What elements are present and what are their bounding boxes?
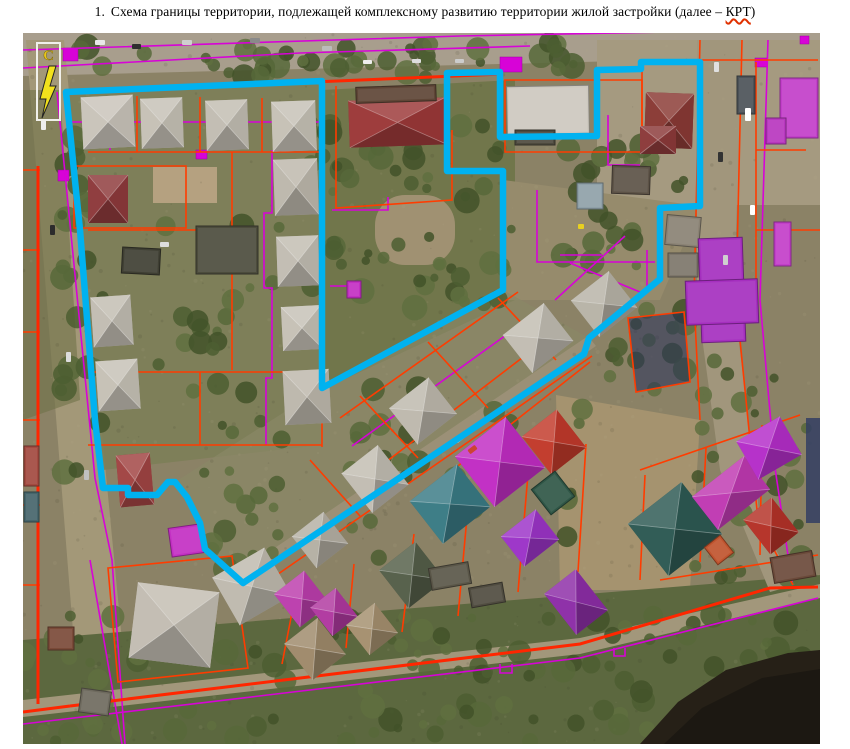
building	[665, 215, 701, 248]
building	[90, 295, 133, 348]
document-page: 1.Схема границы территории, подлежащей к…	[0, 0, 850, 749]
building	[24, 492, 39, 522]
building	[347, 281, 361, 298]
building	[766, 118, 786, 144]
krt-boundary-map: С	[23, 33, 820, 744]
satellite-map-svg: С	[23, 33, 820, 744]
building	[281, 305, 323, 351]
building	[276, 235, 320, 286]
building	[196, 226, 258, 274]
building	[774, 222, 791, 266]
building	[668, 253, 698, 277]
north-label: С	[43, 48, 54, 64]
building	[140, 97, 184, 148]
caption-text: Схема границы территории, подлежащей ком…	[111, 4, 726, 19]
building	[24, 446, 39, 486]
building	[612, 165, 651, 194]
building	[271, 100, 317, 152]
building	[507, 85, 590, 134]
building	[48, 627, 74, 650]
figure-caption: 1.Схема границы территории, подлежащей к…	[0, 4, 850, 20]
caption-suffix: )	[751, 4, 756, 19]
building	[348, 97, 447, 147]
building	[129, 582, 220, 667]
building	[78, 688, 111, 716]
building	[273, 158, 319, 216]
building	[640, 126, 676, 154]
building	[121, 247, 160, 275]
building	[205, 99, 249, 150]
building	[356, 85, 437, 104]
caption-number: 1.	[95, 4, 105, 19]
building	[116, 453, 154, 508]
building	[88, 175, 128, 223]
building	[81, 95, 136, 150]
building	[685, 279, 758, 325]
caption-krt-abbrev: КРТ	[726, 4, 751, 19]
building	[95, 359, 140, 412]
building	[577, 183, 603, 209]
